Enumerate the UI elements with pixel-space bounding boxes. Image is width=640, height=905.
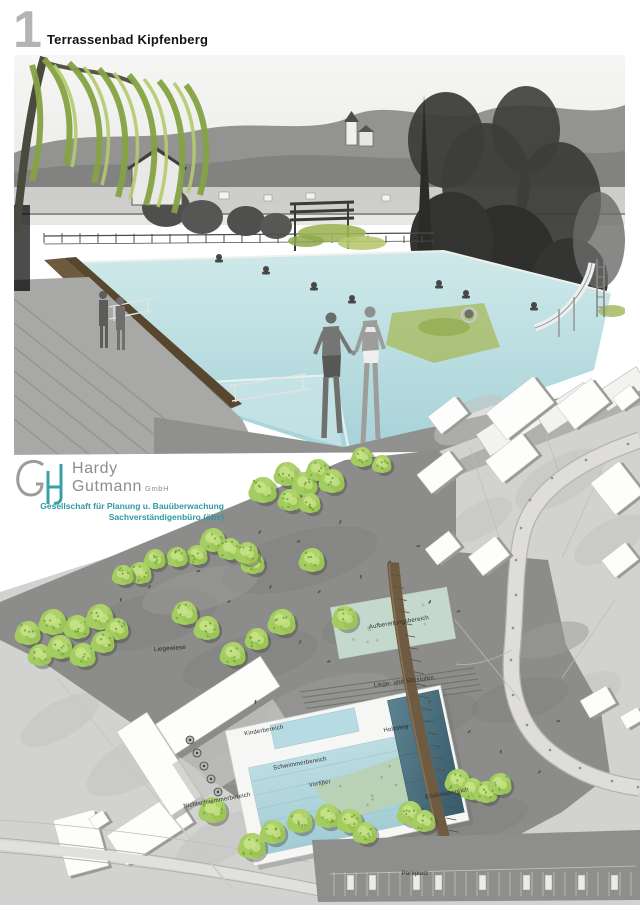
presentation-board: Liegewiese Aufbereitungsbereich Liege- u… bbox=[0, 0, 640, 905]
page-title: Terrassenbad Kipfenberg bbox=[47, 32, 208, 47]
page-number: 1 bbox=[13, 4, 40, 56]
company-name-first: Hardy bbox=[72, 460, 224, 478]
tagline-line-2: Sachverständigenbüro (öbv) bbox=[10, 512, 224, 523]
site-plan bbox=[0, 0, 640, 905]
company-logo: GH Hardy GutmannGmbH Gesellschaft für Pl… bbox=[10, 456, 224, 523]
company-suffix: GmbH bbox=[145, 484, 169, 493]
label-parkplatz: Parkplatz bbox=[402, 871, 429, 877]
gh-monogram-icon bbox=[10, 456, 68, 512]
company-name-last: GutmannGmbH bbox=[72, 478, 224, 496]
company-name: Hardy GutmannGmbH bbox=[72, 456, 224, 495]
